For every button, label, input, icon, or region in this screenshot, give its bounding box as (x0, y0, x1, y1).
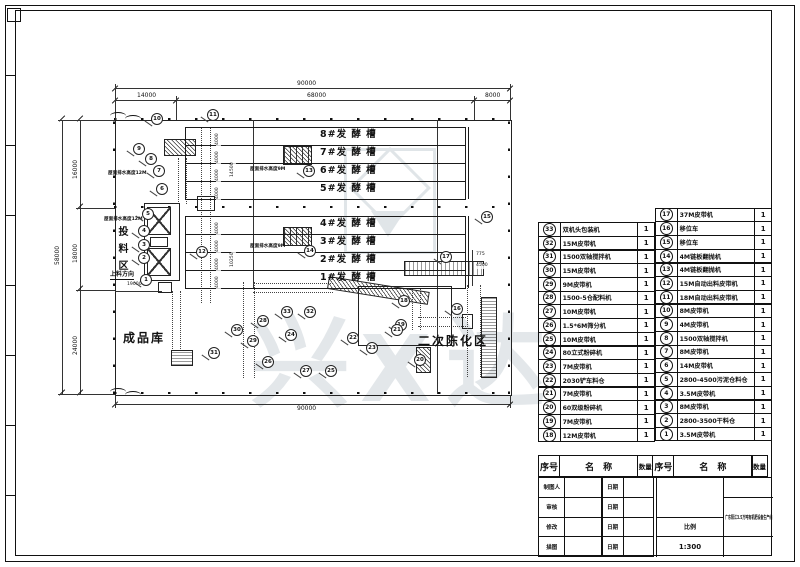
project-title: 广东阳江3.5万吨有机肥设备生产线 (725, 514, 772, 521)
balloon-marker: 13 (303, 165, 315, 177)
tb-date-value (623, 477, 654, 498)
balloon-marker: 26 (262, 356, 274, 368)
part-number-balloon: 17 (660, 208, 673, 221)
balloon-marker: 22 (347, 332, 359, 344)
part-seq: 15 (656, 236, 678, 249)
parts-row: 13.5M皮带机1 (655, 427, 772, 442)
tank-width-dim: 4000 (216, 257, 221, 271)
break-symbol (110, 388, 126, 396)
part-name: 8M皮带机 (678, 401, 756, 414)
part-number-balloon: 11 (660, 291, 673, 304)
dim-overall-height: 58000 (55, 245, 61, 266)
balloon-marker: 18 (398, 295, 410, 307)
parts-header: 序号 名称 数量 序号 名称 数量 (538, 455, 772, 477)
tb-role-label: 审核 (538, 497, 565, 518)
part-name: 10M皮带机 (561, 305, 639, 318)
tank-wall (185, 252, 466, 253)
balloon-marker: 12 (196, 246, 208, 258)
part-qty: 1 (755, 209, 771, 222)
parts-row: 15移位车1 (655, 235, 772, 250)
tb-date-label: 日期 (602, 477, 624, 498)
balloon-marker: 24 (285, 329, 297, 341)
part-number-balloon: 6 (660, 359, 673, 372)
part-seq: 14 (656, 250, 678, 263)
parts-row: 2060双级粉碎机1 (538, 400, 655, 415)
tank-end-wall (185, 216, 186, 288)
part-seq: 8 (656, 332, 678, 345)
tank-wall (185, 163, 466, 164)
part-seq: 23 (539, 360, 561, 373)
extension-line (58, 394, 115, 395)
parts-row: 94M皮带机1 (655, 317, 772, 332)
part-number-balloon: 14 (660, 250, 673, 263)
tb-date-value (623, 497, 654, 518)
part-qty: 1 (755, 346, 771, 359)
part-number-balloon: 13 (660, 263, 673, 276)
part-seq: 6 (656, 359, 678, 372)
part-number-balloon: 15 (660, 236, 673, 249)
part-name: 15M皮带机 (561, 264, 639, 277)
balloon-marker: 7 (153, 165, 165, 177)
tank-wall (185, 127, 466, 128)
part-name: 14M皮带机 (678, 359, 756, 372)
balloon-marker: 9 (133, 143, 145, 155)
tank-label: 3#发 酵 槽 (320, 237, 377, 247)
mixer-symbol (164, 139, 196, 156)
tank-wall (185, 270, 466, 271)
part-seq: 20 (539, 401, 561, 414)
tb-date-label: 日期 (602, 497, 624, 518)
parts-row: 2710M皮带机1 (538, 304, 655, 319)
dimension-line (115, 291, 162, 292)
extension-line (115, 395, 116, 408)
part-name: 10M皮带机 (561, 333, 639, 346)
titleblock-row: 审核日期 (539, 498, 657, 518)
part-seq: 31 (539, 251, 561, 264)
part-name: 2030铲车料仓 (561, 374, 639, 387)
part-number-balloon: 8 (660, 332, 673, 345)
balloon-marker: 17 (440, 251, 452, 263)
tb-scale-value: 1:300 (657, 537, 723, 556)
parts-row: 108M皮带机1 (655, 304, 772, 319)
tank-label: 8#发 酵 槽 (320, 130, 377, 140)
part-qty: 1 (755, 332, 771, 345)
tank-width-dim: 4000 (216, 168, 221, 182)
part-qty: 1 (755, 387, 771, 400)
dim-width-seg: 8000 (484, 93, 501, 99)
part-qty: 1 (755, 318, 771, 331)
part-number-balloon: 10 (660, 304, 673, 317)
part-seq: 4 (656, 387, 678, 400)
part-number-balloon: 4 (660, 387, 673, 400)
part-name: 1500-5仓配料机 (561, 292, 639, 305)
balloon-marker: 2 (138, 252, 150, 264)
part-number-balloon: 23 (543, 360, 556, 373)
tank-width-dim: 4000 (216, 221, 221, 235)
parts-row: 237M皮带机1 (538, 359, 655, 374)
tank-width-dim: 4000 (216, 275, 221, 289)
dim-height-seg: 18000 (73, 243, 79, 264)
extension-line (510, 395, 511, 408)
part-name: 3.5M皮带机 (678, 387, 756, 400)
part-qty: 1 (755, 222, 771, 235)
part-qty: 1 (755, 373, 771, 386)
part-qty: 1 (755, 264, 771, 277)
dim-height-seg: 24000 (73, 335, 79, 356)
part-seq: 17 (656, 209, 678, 222)
tank-wall (185, 181, 466, 182)
extension-line (510, 84, 511, 120)
dimension-line (62, 120, 63, 394)
part-seq: 24 (539, 347, 561, 360)
break-symbol (110, 112, 126, 120)
dim-right-a: 775 (475, 253, 486, 258)
parts-row: 311500双轴搅拌机1 (538, 250, 655, 265)
part-name: 15M自动出料皮带机 (678, 277, 756, 290)
parts-row: 3015M皮带机1 (538, 263, 655, 278)
part-name: 80立式粉碎机 (561, 347, 639, 360)
part-number-balloon: 3 (660, 400, 673, 413)
part-number-balloon: 29 (543, 278, 556, 291)
tank-label: 1#发 酵 槽 (320, 273, 377, 283)
part-name: 37M皮带机 (678, 209, 756, 222)
part-seq: 22 (539, 374, 561, 387)
header-qty: 数量 (752, 455, 768, 477)
titleblock-left: 制图人日期审核日期修改日期描图日期 (539, 478, 657, 557)
part-number-balloon: 2 (660, 414, 673, 427)
tank-wall (185, 216, 466, 217)
part-qty: 1 (638, 292, 654, 305)
balloon-marker: 16 (451, 303, 463, 315)
part-seq: 21 (539, 388, 561, 401)
part-qty: 1 (755, 250, 771, 263)
part-name: 2800-4500污泥仓料仓 (678, 373, 756, 386)
dim-bottom-width: 90000 (296, 406, 317, 412)
part-name: 1500双轴搅拌机 (678, 332, 756, 345)
parts-left-col: 33双机头包装机13215M皮带机1311500双轴搅拌机13015M皮带机12… (538, 223, 655, 442)
balloon-marker: 11 (207, 109, 219, 121)
tb-date-value (623, 536, 654, 557)
tb-date-label: 日期 (602, 536, 624, 557)
part-qty: 1 (755, 236, 771, 249)
part-seq: 30 (539, 264, 561, 277)
part-number-balloon: 27 (543, 305, 556, 318)
part-number-balloon: 22 (543, 374, 556, 387)
dim-width-seg: 14000 (136, 93, 157, 99)
header-seq: 序号 (538, 455, 560, 477)
parts-row: 33双机头包装机1 (538, 222, 655, 237)
grid-line (437, 120, 438, 394)
balloon-marker: 6 (156, 183, 168, 195)
dimension-line (80, 120, 81, 394)
parts-row: 78M皮带机1 (655, 345, 772, 360)
part-number-balloon: 5 (660, 373, 673, 386)
part-qty: 1 (755, 291, 771, 304)
titleblock-row: 描图日期 (539, 537, 657, 557)
part-seq: 26 (539, 319, 561, 332)
parts-row: 299M皮带机1 (538, 277, 655, 292)
tank-label: 2#发 酵 槽 (320, 255, 377, 265)
finished-store-label: 成品库 (123, 332, 165, 344)
part-seq: 25 (539, 333, 561, 346)
balloon-marker: 25 (325, 365, 337, 377)
parts-row: 52800-4500污泥仓料仓1 (655, 372, 772, 387)
part-qty: 1 (755, 428, 771, 441)
tb-date-value (623, 517, 654, 538)
roof-drain-note: 屋面排水高度12M (108, 172, 147, 177)
part-qty: 1 (638, 251, 654, 264)
tank-end-wall (465, 216, 466, 288)
tb-name-cell (564, 536, 602, 557)
parts-row: 1215M自动出料皮带机1 (655, 276, 772, 291)
parts-row: 614M皮带机1 (655, 358, 772, 373)
extension-line (76, 208, 115, 209)
break-symbol (125, 115, 141, 123)
part-name: 60双级粉碎机 (561, 401, 639, 414)
part-qty: 1 (638, 388, 654, 401)
part-qty: 1 (755, 401, 771, 414)
column-grid-dots (114, 392, 511, 394)
extension-line (176, 96, 177, 120)
tank-label: 7#发 酵 槽 (320, 148, 377, 158)
equipment-box (150, 237, 168, 247)
conveyor-symbol (201, 127, 211, 303)
tank-end-wall (468, 127, 469, 199)
dim-right-b: 4500 (475, 264, 489, 269)
parts-row: 22800-3500干料仓1 (655, 413, 772, 428)
extension-line (58, 120, 115, 121)
break-symbol (125, 391, 141, 399)
balloon-marker: 8 (145, 153, 157, 165)
tb-empty-cell (724, 537, 773, 556)
turner-machine-symbol (283, 227, 312, 246)
part-qty: 1 (638, 305, 654, 318)
part-name: 移位车 (678, 236, 756, 249)
part-seq: 10 (656, 305, 678, 318)
column-grid-dots (114, 118, 511, 120)
titleblock-middle: 比例 1:300 (656, 478, 724, 557)
part-qty: 1 (755, 414, 771, 427)
tb-role-label: 制图人 (538, 477, 565, 498)
parts-row: 2510M皮带机1 (538, 332, 655, 347)
tb-empty-cell (657, 478, 723, 518)
parts-row: 38M皮带机1 (655, 400, 772, 415)
tank-label: 4#发 酵 槽 (320, 219, 377, 229)
balloon-marker: 28 (257, 315, 269, 327)
tank-end-wall (468, 216, 469, 288)
part-name: 15M皮带机 (561, 237, 639, 250)
balloon-marker: 20 (414, 354, 426, 366)
part-qty: 1 (638, 319, 654, 332)
balloon-marker: 10 (151, 113, 163, 125)
part-number-balloon: 19 (543, 415, 556, 428)
parts-right-col: 1737M皮带机116移位车115移位车1144M链板翻抛机1134M链板翻抛机… (655, 209, 772, 442)
header-seq: 序号 (652, 455, 674, 477)
part-number-balloon: 24 (543, 346, 556, 359)
part-qty: 1 (638, 360, 654, 373)
crusher-symbol (147, 248, 171, 276)
part-name: 9M皮带机 (561, 278, 639, 291)
part-qty: 1 (638, 237, 654, 250)
tank-wall (185, 199, 466, 200)
dim-height-seg: 16000 (73, 159, 79, 180)
tank-width-dim: 4000 (216, 239, 221, 253)
part-name: 双机头包装机 (561, 223, 639, 236)
tank-wall (185, 234, 466, 235)
balloon-marker: 21 (391, 324, 403, 336)
part-qty: 1 (638, 429, 654, 442)
part-name: 4M链板翻抛机 (678, 264, 756, 277)
parts-row: 144M链板翻抛机1 (655, 249, 772, 264)
part-name: 4M链板翻抛机 (678, 250, 756, 263)
part-name: 18M自动出料皮带机 (678, 291, 756, 304)
part-name: 8M皮带机 (678, 305, 756, 318)
part-qty: 1 (638, 264, 654, 277)
part-number-balloon: 9 (660, 318, 673, 331)
tb-role-label: 修改 (538, 517, 565, 538)
parts-row: 81500双轴搅拌机1 (655, 331, 772, 346)
part-qty: 1 (755, 305, 771, 318)
conveyor-symbol (172, 291, 181, 349)
part-qty: 1 (638, 374, 654, 387)
tb-name-cell (564, 477, 602, 498)
part-name: 4M皮带机 (678, 318, 756, 331)
part-seq: 33 (539, 223, 561, 236)
part-name: 1.5*6M筛分机 (561, 319, 639, 332)
tank-width-dim: 4000 (216, 150, 221, 164)
extension-line (474, 96, 475, 120)
tank-label: 5#发 酵 槽 (320, 184, 377, 194)
balloon-marker: 4 (138, 225, 150, 237)
part-seq: 9 (656, 318, 678, 331)
column-grid-dots (508, 120, 510, 394)
balloon-marker: 29 (247, 335, 259, 347)
part-number-balloon: 30 (543, 264, 556, 277)
dimension-line (115, 88, 510, 89)
tank-label: 6#发 酵 槽 (320, 166, 377, 176)
parts-row: 222030铲车料仓1 (538, 373, 655, 388)
balloon-marker: 31 (208, 347, 220, 359)
balloon-marker: 23 (366, 342, 378, 354)
tb-name-cell (564, 497, 602, 518)
conveyor-symbol (467, 285, 481, 377)
dim-width-seg: 68000 (306, 93, 327, 99)
tb-date-label: 日期 (602, 517, 624, 538)
part-seq: 18 (539, 429, 561, 442)
part-seq: 19 (539, 415, 561, 428)
part-name: 7M皮带机 (561, 388, 639, 401)
part-name: 7M皮带机 (561, 415, 639, 428)
part-seq: 2 (656, 414, 678, 427)
part-seq: 29 (539, 278, 561, 291)
parts-row: 281500-5仓配料机1 (538, 291, 655, 306)
dim-overall-width: 90000 (296, 81, 317, 87)
part-number-balloon: 33 (543, 223, 556, 236)
part-seq: 13 (656, 264, 678, 277)
feeding-direction-label: 上料方向 (110, 272, 134, 280)
title-block: 制图人日期审核日期修改日期描图日期 比例 1:300 广东阳江3.5万吨有机肥设… (538, 477, 772, 556)
parts-row: 1118M自动出料皮带机1 (655, 290, 772, 305)
cad-sheet: 兴 X 达 90000 14000 68000 8000 (0, 0, 800, 567)
part-qty: 1 (638, 333, 654, 346)
tank-end-wall (185, 127, 186, 199)
part-seq: 1 (656, 428, 678, 441)
titleblock-right: 广东阳江3.5万吨有机肥设备生产线 (724, 478, 773, 557)
part-number-balloon: 32 (543, 237, 556, 250)
part-qty: 1 (638, 415, 654, 428)
parts-row: 16移位车1 (655, 221, 772, 236)
part-number-balloon: 16 (660, 222, 673, 235)
header-name: 名称 (559, 455, 638, 477)
roof-drain-note: 屋面排水高度9M (250, 245, 285, 250)
part-number-balloon: 20 (543, 401, 556, 414)
part-number-balloon: 7 (660, 345, 673, 358)
packer-symbol (171, 350, 193, 366)
part-number-balloon: 21 (543, 387, 556, 400)
part-qty: 1 (755, 359, 771, 372)
parts-row: 134M链板翻抛机1 (655, 263, 772, 278)
part-seq: 27 (539, 305, 561, 318)
part-seq: 11 (656, 291, 678, 304)
balloon-marker: 32 (304, 306, 316, 318)
part-seq: 3 (656, 401, 678, 414)
titleblock-row: 修改日期 (539, 518, 657, 538)
tb-project-cell: 广东阳江3.5万吨有机肥设备生产线 (724, 498, 773, 538)
part-number-balloon: 25 (543, 333, 556, 346)
part-seq: 12 (656, 277, 678, 290)
part-name: 8M皮带机 (678, 346, 756, 359)
part-name: 7M皮带机 (561, 360, 639, 373)
part-seq: 7 (656, 346, 678, 359)
balloon-marker: 1 (140, 274, 152, 286)
balloon-marker: 14 (304, 245, 316, 257)
parts-row: 261.5*6M筛分机1 (538, 318, 655, 333)
tank-end-wall (465, 127, 466, 199)
part-qty: 1 (755, 277, 771, 290)
part-qty: 1 (638, 401, 654, 414)
dim-inner-b: 10250 (231, 251, 236, 268)
secondary-aging-label: 二次陈化区 (418, 335, 488, 347)
part-number-balloon: 31 (543, 250, 556, 263)
parts-row: 3215M皮带机1 (538, 236, 655, 251)
parts-row: 1737M皮带机1 (655, 208, 772, 223)
part-seq: 16 (656, 222, 678, 235)
balloon-marker: 27 (300, 365, 312, 377)
conveyor-symbol (243, 282, 255, 378)
part-number-balloon: 1 (660, 428, 673, 441)
header-name: 名称 (673, 455, 752, 477)
balloon-marker: 33 (281, 306, 293, 318)
balloon-marker: 5 (142, 208, 154, 220)
part-number-balloon: 28 (543, 291, 556, 304)
part-name: 移位车 (678, 222, 756, 235)
titleblock-row: 制图人日期 (539, 478, 657, 498)
part-qty: 1 (638, 278, 654, 291)
balloon-marker: 3 (138, 239, 150, 251)
equipment-box (158, 282, 172, 293)
balloon-marker: 15 (481, 211, 493, 223)
tb-scale-label: 比例 (657, 518, 723, 538)
tank-wall (185, 145, 466, 146)
part-number-balloon: 26 (543, 319, 556, 332)
parts-row: 217M皮带机1 (538, 387, 655, 402)
tank-width-dim: 4000 (216, 186, 221, 200)
parts-row: 1812M皮带机1 (538, 428, 655, 443)
part-name: 1500双轴搅拌机 (561, 251, 639, 264)
part-name: 12M皮带机 (561, 429, 639, 442)
part-seq: 28 (539, 292, 561, 305)
part-qty: 1 (638, 223, 654, 236)
